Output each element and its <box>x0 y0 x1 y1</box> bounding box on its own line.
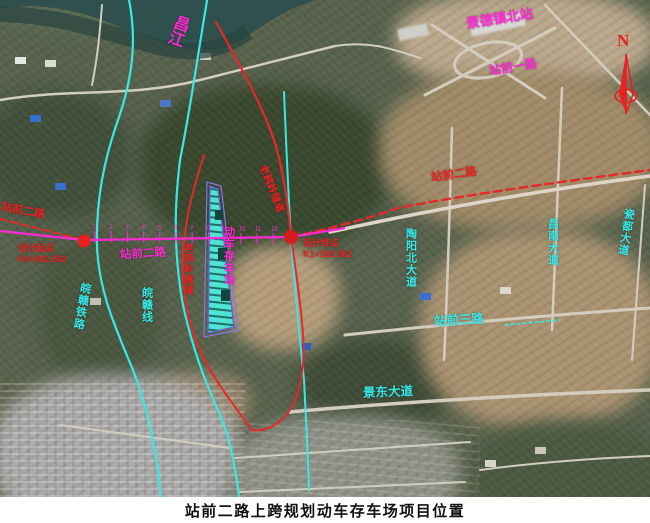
svg-text:6: 6 <box>174 226 178 232</box>
svg-text:11: 11 <box>255 227 262 233</box>
label-zhanqian-2nd-road-center: 站前二路 <box>120 247 167 261</box>
figure-caption: 站前二路上跨规划动车存车场项目位置 <box>0 497 650 523</box>
design-end-note: 设计终点 K1+262.562 <box>303 238 352 260</box>
svg-text:2: 2 <box>109 225 113 231</box>
svg-text:7: 7 <box>190 226 194 232</box>
label-changnan-avenue: 昌南大道 <box>546 218 558 266</box>
design-end-chainage: K1+262.562 <box>303 249 352 260</box>
road-line-east <box>284 92 309 490</box>
north-label: N <box>617 31 630 50</box>
design-start-chainage: K0+082.562 <box>18 254 67 265</box>
design-start-note: 设计起点 K0+082.562 <box>18 243 67 265</box>
design-end-label: 设计终点 <box>303 238 352 249</box>
svg-text:5: 5 <box>158 225 162 231</box>
project-location-figure: 123456789101112 N 昌江 景德镇北站 站前一路 站前二路 动车存… <box>0 0 650 523</box>
label-emu-yard: 动车存车场 <box>222 226 234 286</box>
svg-text:12: 12 <box>271 227 278 233</box>
design-start-dot <box>78 235 91 248</box>
svg-text:10: 10 <box>239 226 246 232</box>
label-zhanqian-3rd-road: 站前三路 <box>434 313 485 329</box>
design-end-dot <box>284 230 298 244</box>
design-start-label: 设计起点 <box>18 243 67 254</box>
svg-text:4: 4 <box>142 225 146 231</box>
svg-text:3: 3 <box>125 225 129 231</box>
label-jingdong-avenue: 景东大道 <box>363 385 413 400</box>
label-tunnel-left: 老鸦岭隧道 <box>182 243 192 296</box>
label-taoyang-avenue: 陶阳北大道 <box>404 228 416 288</box>
label-railway-center: 皖赣线 <box>140 287 152 323</box>
north-arrow: N <box>615 31 637 114</box>
satellite-map: 123456789101112 N 昌江 景德镇北站 站前一路 站前二路 动车存… <box>0 0 650 497</box>
